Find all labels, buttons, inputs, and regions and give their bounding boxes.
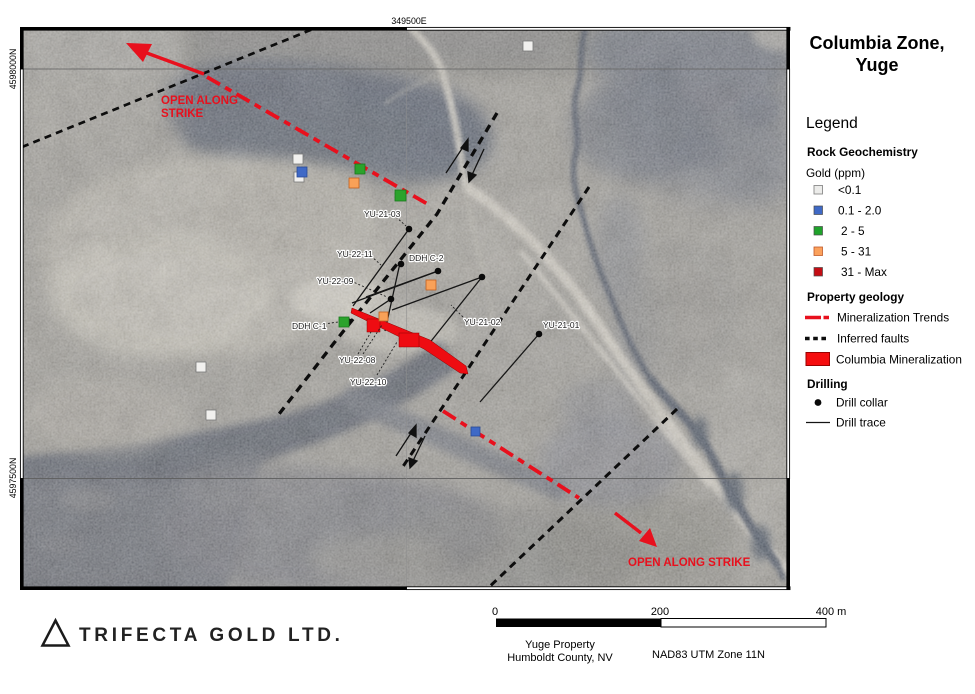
svg-text:YU-22-08: YU-22-08 — [339, 355, 376, 365]
svg-text:OPEN ALONG STRIKE: OPEN ALONG STRIKE — [628, 557, 751, 569]
svg-text:OPEN ALONG: OPEN ALONG — [161, 95, 238, 107]
svg-text:5 - 31: 5 - 31 — [841, 245, 871, 259]
svg-text:Gold (ppm): Gold (ppm) — [806, 166, 865, 180]
svg-text:Columbia Mineralization: Columbia Mineralization — [836, 353, 962, 367]
svg-text:STRIKE: STRIKE — [161, 108, 204, 120]
svg-text:YU-22-10: YU-22-10 — [350, 377, 387, 387]
svg-text:4597500N: 4597500N — [8, 458, 18, 499]
svg-text:YU-21-03: YU-21-03 — [364, 209, 401, 219]
svg-text:YU-22-09: YU-22-09 — [317, 276, 354, 286]
svg-text:NAD83 UTM Zone 11N: NAD83 UTM Zone 11N — [652, 649, 765, 661]
svg-text:Mineralization Trends: Mineralization Trends — [837, 311, 949, 325]
svg-text:200: 200 — [651, 606, 669, 618]
svg-text:Inferred faults: Inferred faults — [837, 332, 909, 346]
svg-text:Yuge: Yuge — [855, 55, 898, 75]
svg-text:Yuge Property: Yuge Property — [525, 639, 595, 651]
svg-text:Drill collar: Drill collar — [836, 396, 888, 410]
svg-text:400 m: 400 m — [816, 606, 847, 618]
svg-text:TRIFECTA GOLD LTD.: TRIFECTA GOLD LTD. — [79, 625, 344, 646]
svg-text:Property geology: Property geology — [807, 290, 904, 304]
svg-text:YU-22-11: YU-22-11 — [337, 249, 373, 259]
svg-text:<0.1: <0.1 — [838, 183, 861, 197]
svg-text:0.1 - 2.0: 0.1 - 2.0 — [838, 204, 882, 218]
svg-text:Columbia Zone,: Columbia Zone, — [810, 33, 945, 53]
svg-text:Legend: Legend — [806, 115, 858, 132]
svg-text:Drilling: Drilling — [807, 377, 848, 391]
svg-text:YU-21-02: YU-21-02 — [464, 317, 501, 327]
svg-text:Drill trace: Drill trace — [836, 416, 886, 430]
svg-text:Rock Geochemistry: Rock Geochemistry — [807, 145, 918, 159]
svg-text:349500E: 349500E — [391, 16, 426, 26]
svg-text:4598000N: 4598000N — [8, 49, 18, 90]
svg-text:DDH C-1: DDH C-1 — [292, 321, 327, 331]
svg-text:DDH C-2: DDH C-2 — [409, 253, 444, 263]
svg-text:31 - Max: 31 - Max — [841, 265, 887, 279]
svg-text:0: 0 — [492, 606, 498, 618]
svg-text:YU-21-01: YU-21-01 — [543, 320, 580, 330]
svg-text:Humboldt County, NV: Humboldt County, NV — [507, 652, 613, 664]
svg-text:2 - 5: 2 - 5 — [841, 224, 865, 238]
